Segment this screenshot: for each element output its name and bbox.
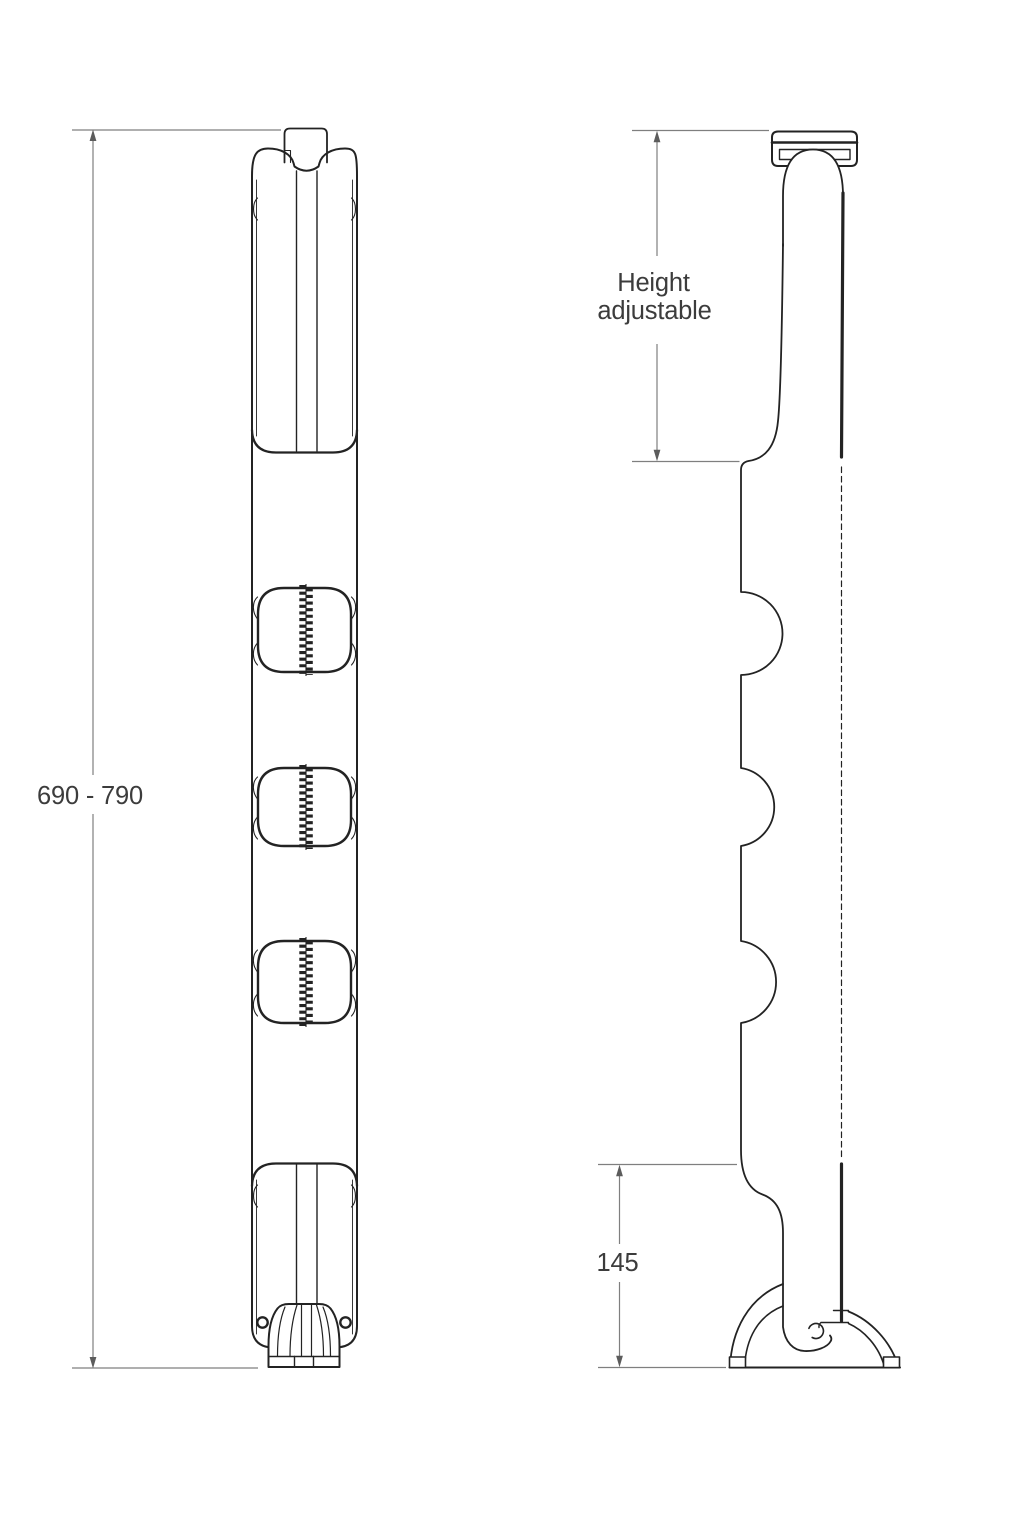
column-right-edge-upper: [842, 193, 844, 457]
base-dome: [730, 1284, 901, 1368]
base-dome-inner-right: [849, 1324, 885, 1368]
dimension-base-height: 145: [597, 1165, 737, 1368]
base-dome-inner-left: [745, 1306, 784, 1367]
top-sleeve-ears: [254, 198, 356, 220]
front-foot-screw-left: [257, 1317, 267, 1327]
top-sleeve-bottom-edge: [252, 430, 357, 453]
center-tube-lines: [297, 171, 318, 1303]
overall-height-label: 690 - 790: [37, 782, 143, 810]
column-left-profile: [741, 244, 831, 1351]
dimension-overall-height: 690 - 790: [37, 130, 281, 1369]
front-foot-outline: [269, 1304, 340, 1367]
column-top-arc: [783, 150, 843, 247]
technical-drawing-page: 690 - 790 Height adjustable 145: [0, 0, 1024, 1536]
dimension-height-adjustable: Height adjustable: [597, 131, 769, 462]
zip-sleeve-1: [253, 584, 355, 676]
base-height-label: 145: [597, 1249, 639, 1277]
base-pad-left: [730, 1357, 746, 1368]
side-view: [730, 132, 901, 1368]
zip-sleeve-2: [253, 764, 355, 850]
front-view: [252, 129, 357, 1368]
base-pad-right: [884, 1357, 900, 1368]
cable-clip-detail: [809, 1323, 824, 1338]
zip-sleeve-3: [253, 937, 355, 1027]
height-adjustable-label-line1: Height: [617, 269, 690, 297]
top-sleeve-inner-highlight-lines: [257, 180, 353, 436]
dimension-annotations: 690 - 790 Height adjustable 145: [37, 130, 769, 1369]
spine-body-outline: [252, 149, 357, 1348]
bottom-sleeve-ears: [254, 1185, 356, 1207]
drawing-canvas: 690 - 790 Height adjustable 145: [0, 0, 1024, 1536]
base-column-junction: [819, 1311, 849, 1328]
front-foot-screw-right: [340, 1317, 350, 1327]
height-adjustable-label-line2: adjustable: [597, 297, 711, 325]
bottom-sleeve-top-edge: [252, 1164, 357, 1187]
overall-height-extension-lines: [72, 130, 281, 1368]
front-foot: [257, 1304, 350, 1367]
